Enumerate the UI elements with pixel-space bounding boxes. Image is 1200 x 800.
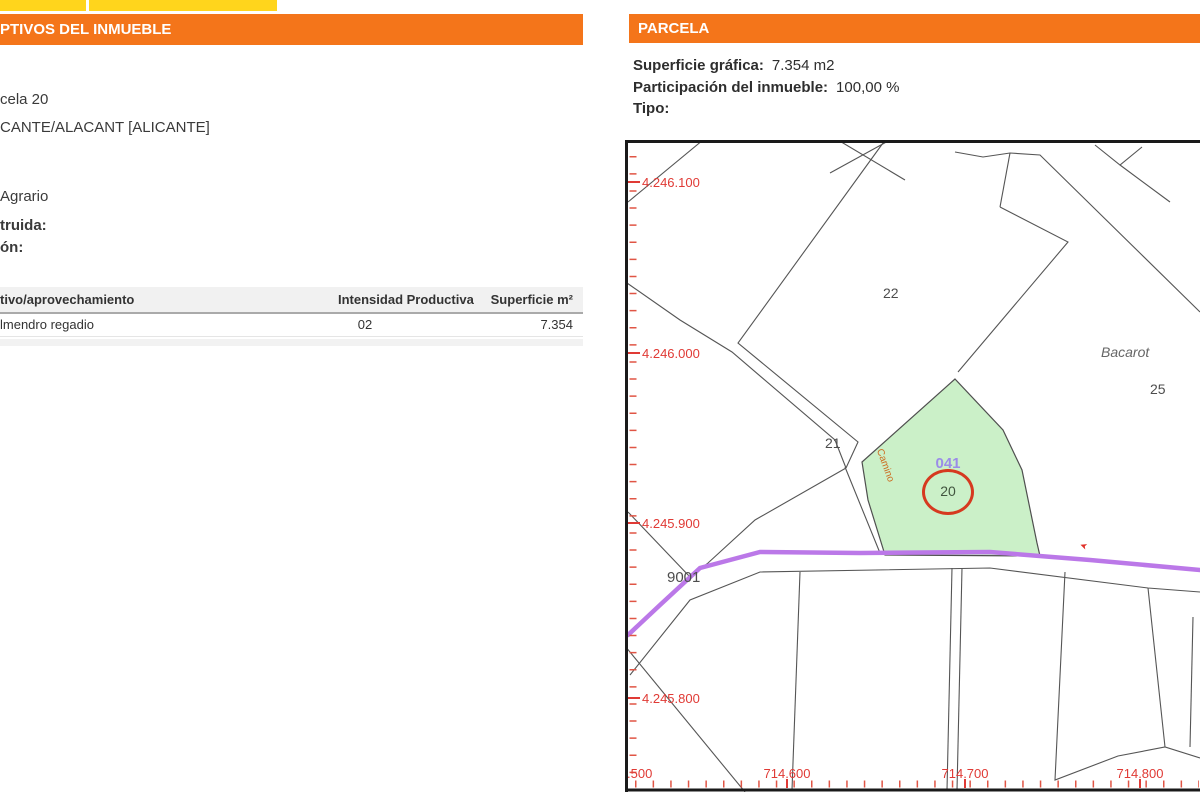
field-label: Tipo:	[633, 100, 669, 117]
col-superficie: Superficie m²	[490, 287, 573, 312]
x-axis-label: 714.800	[1116, 766, 1164, 781]
parcel-label-22: 22	[883, 285, 899, 301]
table-row-border	[0, 336, 583, 337]
x-axis-label: 714.700	[941, 766, 989, 781]
y-axis-label: 4.245.900	[642, 516, 700, 531]
cadastral-map[interactable]: 4.246.100 4.246.000 4.245.900 4.245.800 …	[625, 140, 1200, 792]
built-area-label: truida:	[0, 217, 47, 234]
y-axis-label: 4.245.800	[642, 691, 700, 706]
field-participacion: Participación del inmueble:100,00 %	[633, 79, 899, 96]
field-label: Superficie gráfica:	[633, 57, 764, 74]
place-label-bacarot: Bacarot	[1101, 344, 1149, 360]
col-intensidad: Intensidad Productiva	[338, 287, 472, 312]
road-path	[628, 552, 1200, 635]
field-label: Participación del inmueble:	[633, 79, 828, 96]
section-header-parcela: PARCELA	[629, 14, 1200, 43]
parcel-line: cela 20	[0, 91, 48, 108]
section-header-datos-descriptivos: PTIVOS DEL INMUEBLE	[0, 14, 583, 45]
tab-yellow-right[interactable]	[89, 0, 277, 11]
y-axis-label: 4.246.000	[642, 346, 700, 361]
x-axis-label: .500	[627, 766, 652, 781]
municipality-line: CANTE/ALACANT [ALICANTE]	[0, 119, 210, 136]
y-axis-label: 4.246.100	[642, 175, 700, 190]
highlight-circle: 20	[922, 469, 974, 515]
field-superficie-grafica: Superficie gráfica:7.354 m2	[633, 57, 834, 74]
field-value: 7.354 m2	[772, 57, 835, 74]
col-cultivo: tivo/aprovechamiento	[0, 287, 134, 312]
cadastral-map-svg	[625, 140, 1200, 792]
field-tipo: Tipo:	[633, 100, 677, 117]
tab-yellow-left[interactable]	[0, 0, 86, 11]
x-axis-label: 714.600	[763, 766, 811, 781]
parcel-label-21: 21	[825, 435, 841, 451]
table-footer-strip	[0, 339, 583, 346]
parcel-label-25: 25	[1150, 381, 1166, 397]
cell-intensidad: 02	[300, 314, 430, 336]
field-value: 100,00 %	[836, 79, 899, 96]
cell-superficie: 7.354	[490, 314, 573, 336]
use-value: Agrario	[0, 188, 48, 205]
construction-label: ón:	[0, 239, 23, 256]
parcel-label-9001: 9001	[667, 569, 700, 586]
cell-cultivo: lmendro regadio	[0, 314, 94, 336]
